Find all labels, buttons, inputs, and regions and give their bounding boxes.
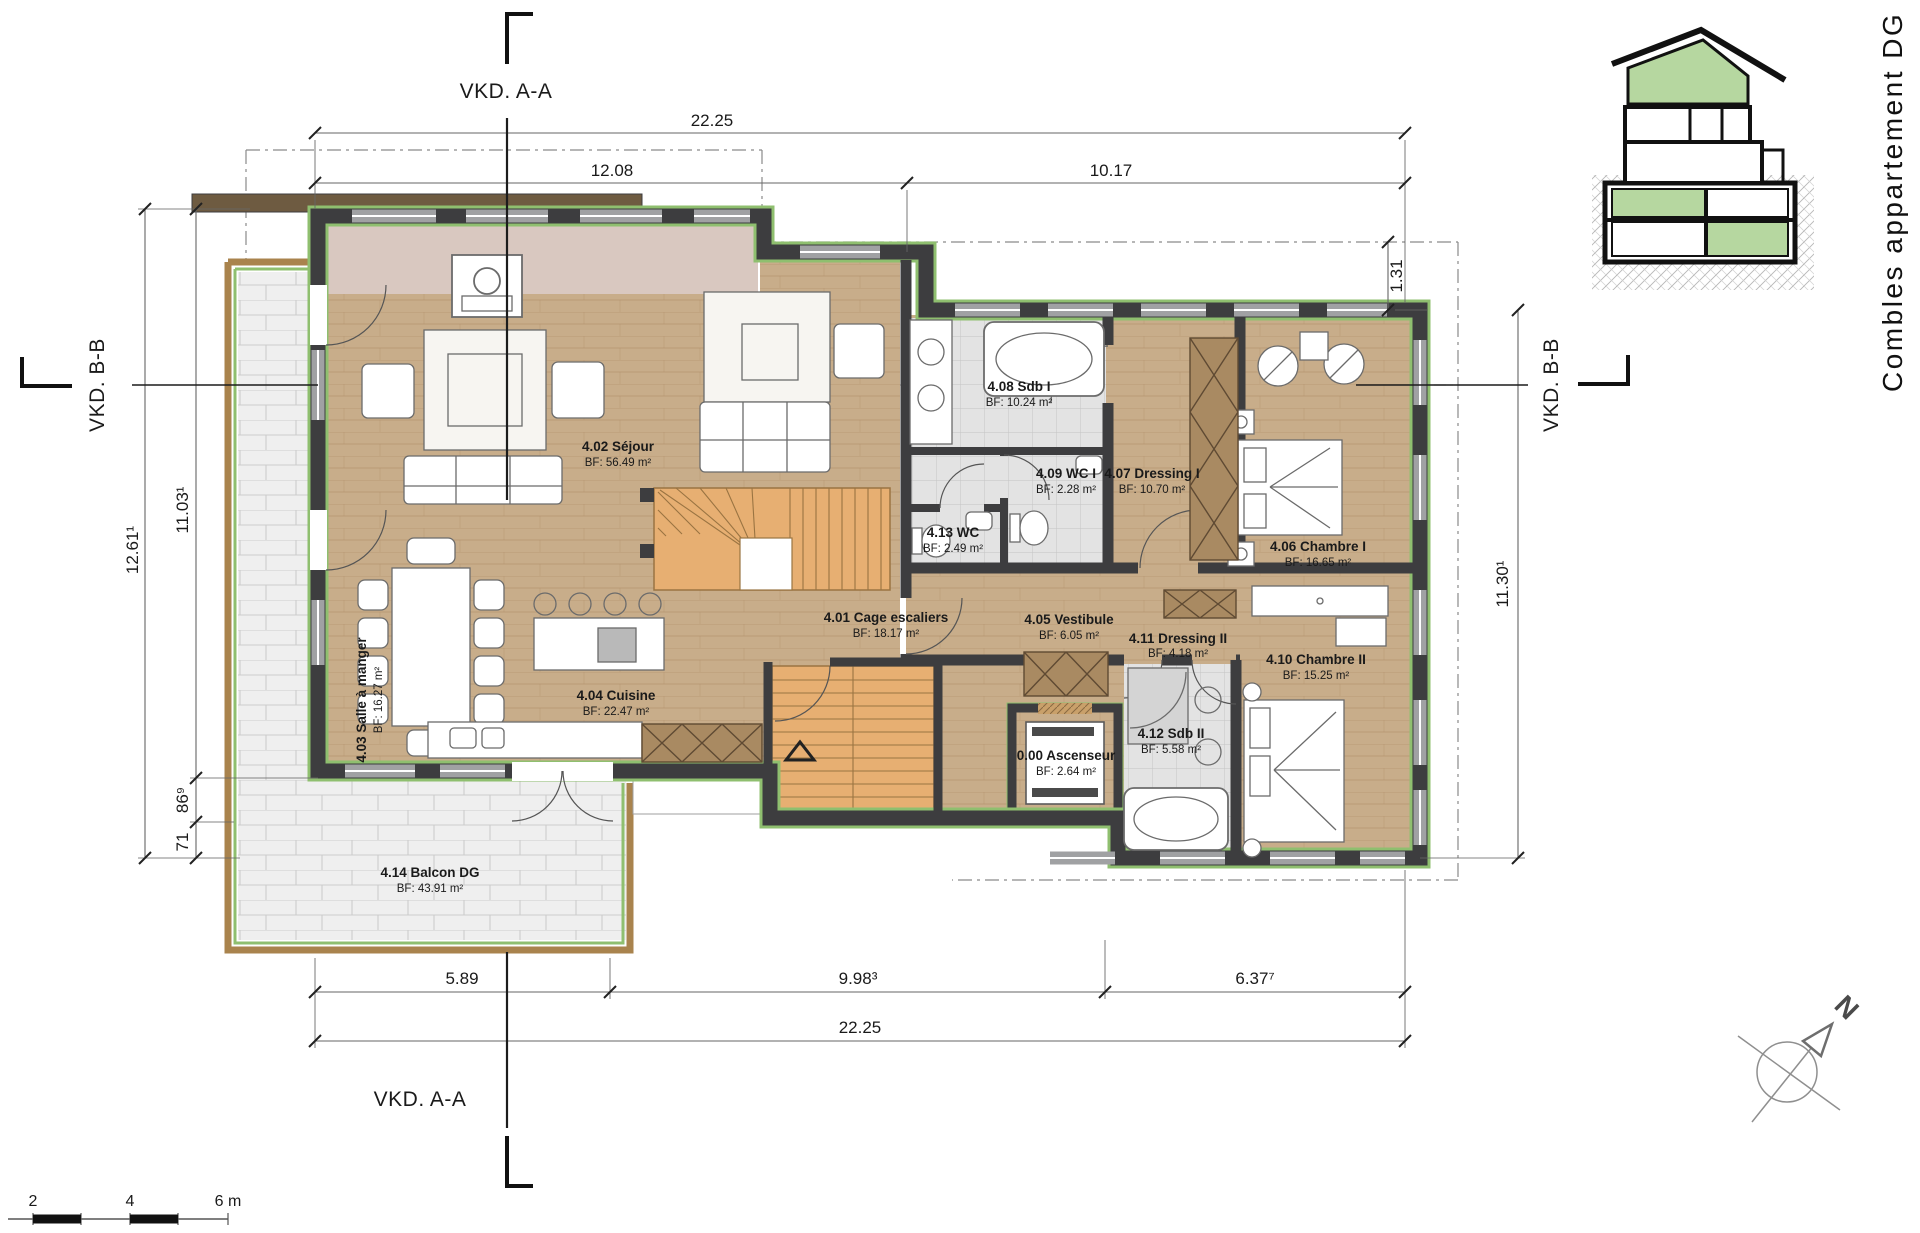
armchair — [362, 364, 414, 418]
dim-left-inner: 11.03¹ — [173, 486, 192, 533]
room-area-0-00: BF: 2.64 m² — [1036, 766, 1096, 778]
dim-bottom-total: 22.25 — [839, 1018, 882, 1037]
section-label-right: VKD. B-B — [1540, 338, 1563, 432]
floorplan-sheet: 4.01 Cage escaliers BF: 18.17 m² 4.02 Sé… — [0, 0, 1920, 1233]
room-area-4-12: BF: 5.58 m² — [1141, 744, 1201, 756]
room-area-4-06: BF: 16.65 m² — [1285, 557, 1352, 569]
room-area-4-11: BF: 4.18 m² — [1148, 648, 1208, 660]
rug-b — [704, 292, 830, 402]
room-label-4-03: 4.03 Salle à manger — [354, 637, 369, 763]
section-label-left: VKD. B-B — [86, 338, 109, 432]
sofa-b — [700, 402, 830, 472]
room-area-4-04: BF: 22.47 m² — [583, 706, 650, 718]
floorplan-canvas: 4.01 Cage escaliers BF: 18.17 m² 4.02 Sé… — [0, 0, 1920, 1233]
dim-left-small-a: 86⁹ — [173, 787, 192, 813]
room-label-4-14: 4.14 Balcon DG — [380, 865, 479, 880]
room-label-4-02: 4.02 Séjour — [582, 439, 655, 454]
room-label-4-09: 4.09 WC I — [1036, 466, 1096, 481]
armchair — [552, 362, 604, 418]
rug-a — [424, 330, 546, 450]
section-floor-2 — [1625, 107, 1750, 142]
stair-landing-notch — [740, 538, 792, 590]
dining-table — [392, 568, 470, 726]
section-bracket-bottom — [507, 1136, 533, 1186]
scale-tick-4: 4 — [126, 1193, 135, 1210]
section-bracket-right — [1578, 355, 1628, 384]
room-label-4-05: 4.05 Vestibule — [1024, 612, 1114, 627]
section-bracket-left — [22, 357, 72, 386]
room-label-4-07: 4.07 Dressing I — [1104, 466, 1199, 481]
elevator-sill — [1038, 703, 1092, 714]
room-label-4-13: 4.13 WC — [927, 525, 980, 540]
dim-overhang-right: 1.31 — [1387, 259, 1406, 292]
room-area-4-08: BF: 10.24 m² — [986, 397, 1053, 409]
room-label-4-12: 4.12 Sdb II — [1138, 726, 1205, 741]
room-label-0-00: 0.00 Ascenseur — [1017, 748, 1116, 763]
section-label-bottom: VKD. A-A — [374, 1088, 467, 1111]
dim-top-total: 22.25 — [691, 111, 734, 130]
sideboard — [1252, 586, 1388, 616]
room-area-4-10: BF: 15.25 m² — [1283, 670, 1350, 682]
room-label-4-10: 4.10 Chambre II — [1266, 652, 1366, 667]
exterior-cut — [772, 824, 1114, 856]
room-label-4-01: 4.01 Cage escaliers — [824, 610, 949, 625]
section-bracket-top — [507, 14, 533, 64]
dim-left-outer: 12.61¹ — [123, 526, 142, 575]
sofa-a — [404, 456, 562, 504]
scale-bar: 2 4 6 m — [8, 1193, 241, 1225]
section-label-top: VKD. A-A — [460, 80, 553, 103]
room-area-4-03: BF: 16.27 m² — [373, 667, 385, 734]
room-area-4-05: BF: 6.05 m² — [1039, 630, 1099, 642]
section-floor-1 — [1625, 142, 1762, 183]
room-label-4-08: 4.08 Sdb I — [987, 379, 1050, 394]
dim-top-left: 12.08 — [591, 161, 634, 180]
north-label: N — [1829, 989, 1865, 1025]
room-area-4-01: BF: 18.17 m² — [853, 628, 920, 640]
room-area-4-02: BF: 56.49 m² — [585, 457, 652, 469]
north-arrow-icon: N — [1738, 989, 1865, 1122]
sheet-title: Combles appartement DG — [1877, 12, 1908, 392]
armchair — [834, 324, 884, 378]
section-inset — [1592, 30, 1814, 290]
room-area-4-14: BF: 43.91 m² — [397, 883, 464, 895]
hob — [598, 628, 636, 662]
dim-right-side: 11.30¹ — [1493, 560, 1512, 607]
room-label-4-11: 4.11 Dressing II — [1129, 631, 1227, 646]
dim-bottom-c: 6.37⁷ — [1235, 969, 1274, 988]
scale-tick-6: 6 m — [215, 1193, 242, 1210]
room-label-4-06: 4.06 Chambre I — [1270, 539, 1366, 554]
scale-tick-2: 2 — [29, 1193, 38, 1210]
dim-top-right: 10.17 — [1090, 161, 1133, 180]
dim-left-small-b: 71 — [173, 833, 192, 852]
room-area-4-07: BF: 10.70 m² — [1119, 484, 1186, 496]
dim-bottom-a: 5.89 — [445, 969, 478, 988]
room-area-4-09: BF: 2.28 m² — [1036, 484, 1096, 496]
room-area-4-13: BF: 2.49 m² — [923, 543, 983, 555]
dim-bottom-b: 9.98³ — [839, 969, 878, 988]
landing-outside — [633, 780, 765, 814]
room-label-4-04: 4.04 Cuisine — [577, 688, 656, 703]
hearth-strip — [326, 224, 758, 294]
